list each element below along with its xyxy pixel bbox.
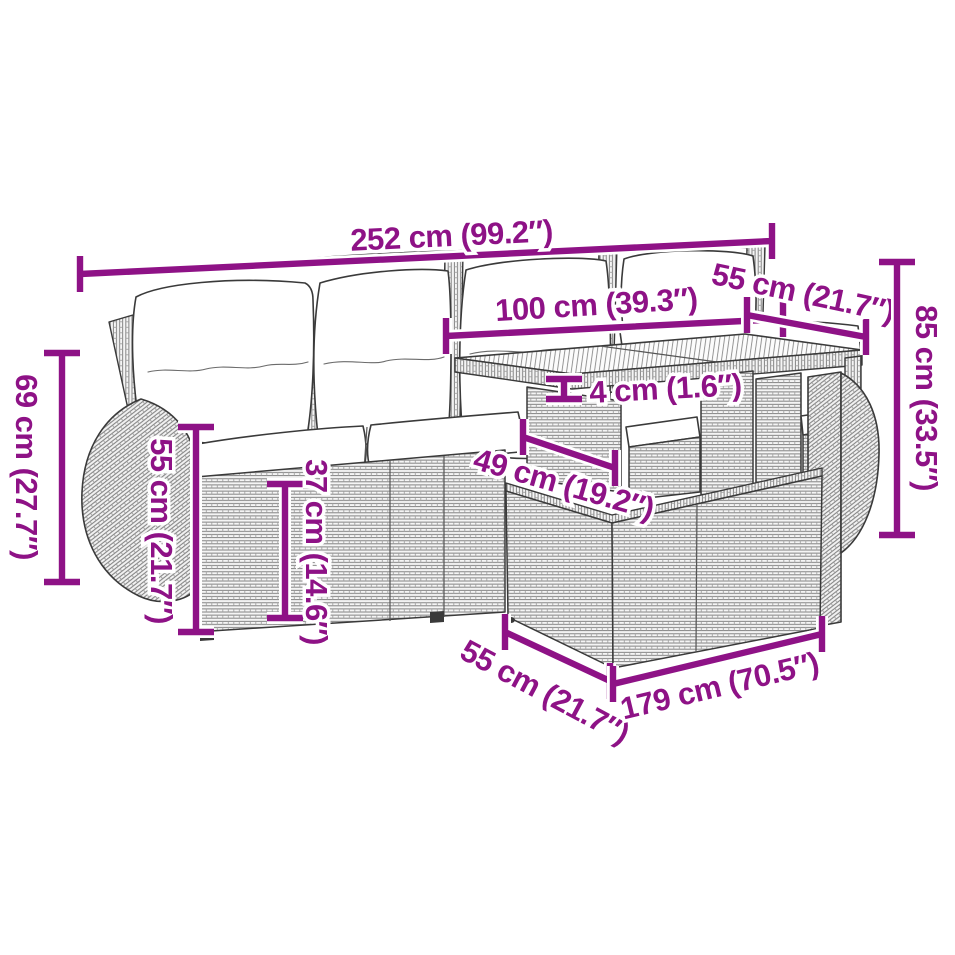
dimension-label-sofa-height: 69 cm (27.7″) — [9, 374, 44, 560]
dimension-label-seat-height: 37 cm (14.6″) — [299, 459, 334, 645]
back-panel — [756, 373, 801, 483]
dimension-sofa-height: 69 cm (27.7″) — [9, 353, 80, 582]
back-cushion — [314, 270, 451, 445]
sofa-front-panel — [196, 450, 505, 632]
dimension-diagram-image: 252 cm (99.2″) 100 cm (39.3″) 55 cm (21.… — [0, 0, 955, 955]
sofa-foot — [430, 611, 444, 623]
dimension-line — [44, 353, 80, 582]
dimension-label-backrest-height: 55 cm (21.7″) — [144, 438, 179, 624]
sofa-base — [196, 450, 505, 641]
dimension-label-table-height: 85 cm (33.5″) — [909, 305, 944, 491]
armrest-right-curve — [841, 373, 879, 553]
diagram-canvas: 252 cm (99.2″) 100 cm (39.3″) 55 cm (21.… — [0, 0, 955, 955]
